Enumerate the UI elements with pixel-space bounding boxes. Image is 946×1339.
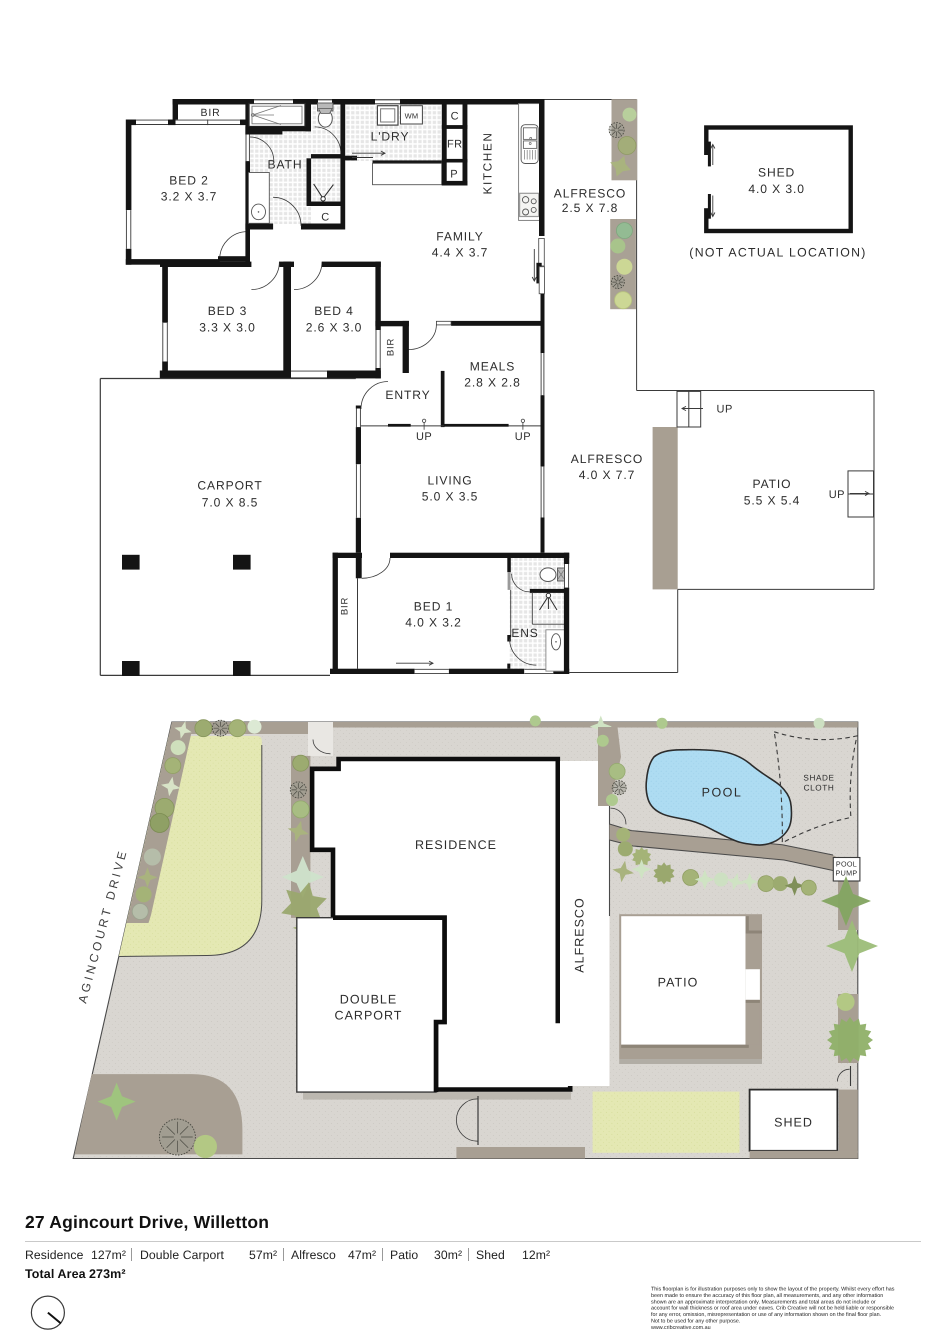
svg-text:WM: WM xyxy=(405,112,419,121)
svg-text:ENTRY: ENTRY xyxy=(385,388,430,402)
svg-text:KITCHEN: KITCHEN xyxy=(481,132,495,195)
svg-text:Alfresco: Alfresco xyxy=(291,1248,336,1262)
svg-text:PATIO: PATIO xyxy=(658,976,699,990)
svg-text:2.8 X 2.8: 2.8 X 2.8 xyxy=(464,376,521,390)
svg-text:30m²: 30m² xyxy=(434,1248,462,1262)
svg-text:3.3 X 3.0: 3.3 X 3.0 xyxy=(199,321,256,335)
svg-text:BIR: BIR xyxy=(340,597,351,615)
svg-text:SHED: SHED xyxy=(758,166,795,180)
svg-text:C: C xyxy=(321,212,329,224)
svg-text:CARPORT: CARPORT xyxy=(197,479,262,493)
svg-text:UP: UP xyxy=(515,431,531,443)
svg-text:account for wall thickness or: account for wall thickness or roof area … xyxy=(651,1306,894,1312)
svg-text:(NOT ACTUAL LOCATION): (NOT ACTUAL LOCATION) xyxy=(689,246,866,260)
svg-text:SHADE: SHADE xyxy=(803,774,834,783)
svg-text:5.5 X 5.4: 5.5 X 5.4 xyxy=(744,494,801,508)
svg-text:www.cribcreative.com.au: www.cribcreative.com.au xyxy=(650,1325,711,1331)
svg-text:BIR: BIR xyxy=(386,338,397,356)
svg-text:47m²: 47m² xyxy=(348,1248,376,1262)
svg-text:4.0 X 3.0: 4.0 X 3.0 xyxy=(748,182,805,196)
svg-text:FAMILY: FAMILY xyxy=(436,230,484,244)
svg-text:SHED: SHED xyxy=(774,1116,813,1130)
svg-text:BED 2: BED 2 xyxy=(169,174,208,188)
svg-text:RESIDENCE: RESIDENCE xyxy=(415,838,497,852)
svg-text:Patio: Patio xyxy=(390,1248,418,1262)
svg-text:BED 4: BED 4 xyxy=(314,304,353,318)
svg-text:PATIO: PATIO xyxy=(753,477,792,491)
svg-text:27 Agincourt Drive, Willetton: 27 Agincourt Drive, Willetton xyxy=(25,1212,269,1232)
svg-text:Total Area: Total Area xyxy=(25,1267,87,1281)
svg-text:ENS: ENS xyxy=(511,626,538,640)
svg-text:273m²: 273m² xyxy=(89,1267,126,1281)
svg-text:Not to be used for any other p: Not to be used for any other purpose. xyxy=(651,1319,740,1325)
svg-text:P: P xyxy=(450,169,458,181)
svg-text:4.0 X 3.2: 4.0 X 3.2 xyxy=(405,616,462,630)
svg-text:POOL: POOL xyxy=(702,786,743,800)
svg-text:UP: UP xyxy=(416,431,432,443)
svg-text:FR: FR xyxy=(447,139,463,151)
svg-text:ALFRESCO: ALFRESCO xyxy=(571,452,643,466)
svg-text:Double Carport: Double Carport xyxy=(140,1248,225,1262)
svg-text:57m²: 57m² xyxy=(249,1248,277,1262)
svg-text:UP: UP xyxy=(829,489,845,501)
svg-text:BIR: BIR xyxy=(201,107,221,119)
svg-text:2.6 X 3.0: 2.6 X 3.0 xyxy=(306,321,363,335)
svg-text:UP: UP xyxy=(717,404,733,416)
svg-text:BED 1: BED 1 xyxy=(414,600,453,614)
svg-text:2.5 X 7.8: 2.5 X 7.8 xyxy=(562,201,619,215)
svg-text:L'DRY: L'DRY xyxy=(371,130,410,144)
svg-text:Residence: Residence xyxy=(25,1248,84,1262)
svg-text:7.0 X 8.5: 7.0 X 8.5 xyxy=(202,496,259,510)
svg-text:BED 3: BED 3 xyxy=(208,304,247,318)
svg-text:CLOTH: CLOTH xyxy=(804,784,835,793)
svg-text:PUMP: PUMP xyxy=(836,869,858,878)
svg-text:MEALS: MEALS xyxy=(470,360,516,374)
svg-text:4.4 X 3.7: 4.4 X 3.7 xyxy=(432,246,489,260)
svg-text:3.2 X 3.7: 3.2 X 3.7 xyxy=(161,190,218,204)
svg-text:ALFRESCO: ALFRESCO xyxy=(554,187,626,201)
svg-text:4.0 X 7.7: 4.0 X 7.7 xyxy=(579,468,636,482)
svg-text:127m²: 127m² xyxy=(91,1248,126,1262)
svg-text:C: C xyxy=(451,111,459,123)
svg-text:for any error, omission, misre: for any error, omission, misrepresentati… xyxy=(651,1312,881,1318)
svg-text:Shed: Shed xyxy=(476,1248,505,1262)
svg-text:12m²: 12m² xyxy=(522,1248,550,1262)
svg-text:BATH: BATH xyxy=(268,158,303,172)
svg-text:CARPORT: CARPORT xyxy=(335,1009,403,1023)
svg-text:LIVING: LIVING xyxy=(427,474,472,488)
svg-text:DOUBLE: DOUBLE xyxy=(340,993,397,1007)
svg-text:ALFRESCO: ALFRESCO xyxy=(573,897,587,972)
svg-text:shown are an approximate inter: shown are an approximate interpretation … xyxy=(651,1299,876,1305)
svg-text:This floorplan is for illustra: This floorplan is for illustration purpo… xyxy=(651,1287,895,1293)
svg-text:5.0 X 3.5: 5.0 X 3.5 xyxy=(422,490,479,504)
svg-text:POOL: POOL xyxy=(836,860,857,869)
svg-text:been made to ensure the accura: been made to ensure the accuracy of this… xyxy=(651,1293,883,1299)
